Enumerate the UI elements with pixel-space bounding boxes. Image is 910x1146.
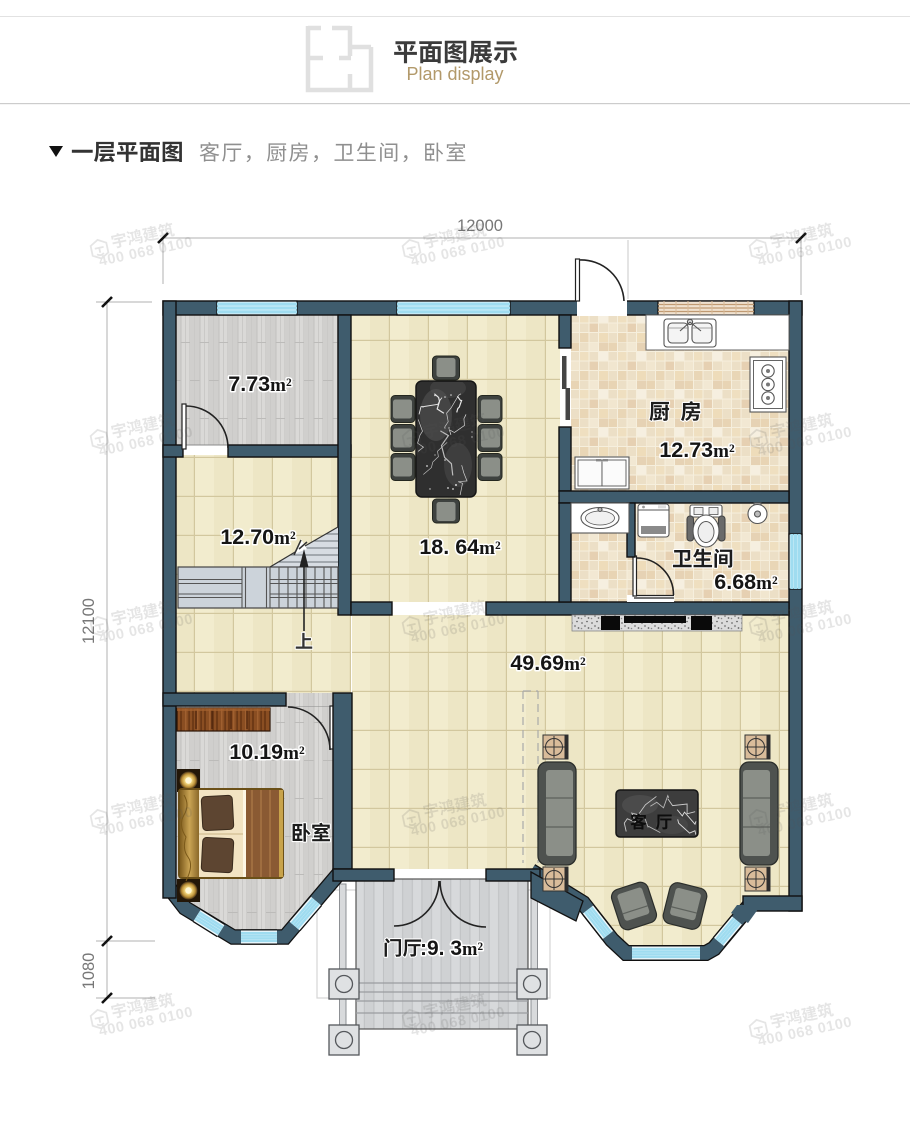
svg-text:49.69m²: 49.69m² xyxy=(510,651,586,675)
svg-text:18. 64m²: 18. 64m² xyxy=(419,535,501,559)
svg-text:Plan display: Plan display xyxy=(406,64,503,84)
svg-text:12.70m²: 12.70m² xyxy=(220,525,296,549)
svg-text:7.73m²: 7.73m² xyxy=(228,372,292,396)
svg-text:10.19m²: 10.19m² xyxy=(229,740,305,764)
svg-text:12100: 12100 xyxy=(80,598,98,644)
svg-text::9. 3m²: :9. 3m² xyxy=(420,937,483,960)
svg-text:1080: 1080 xyxy=(80,953,98,990)
svg-text:12.73m²: 12.73m² xyxy=(659,438,735,462)
svg-text:6.68m²: 6.68m² xyxy=(714,570,778,594)
